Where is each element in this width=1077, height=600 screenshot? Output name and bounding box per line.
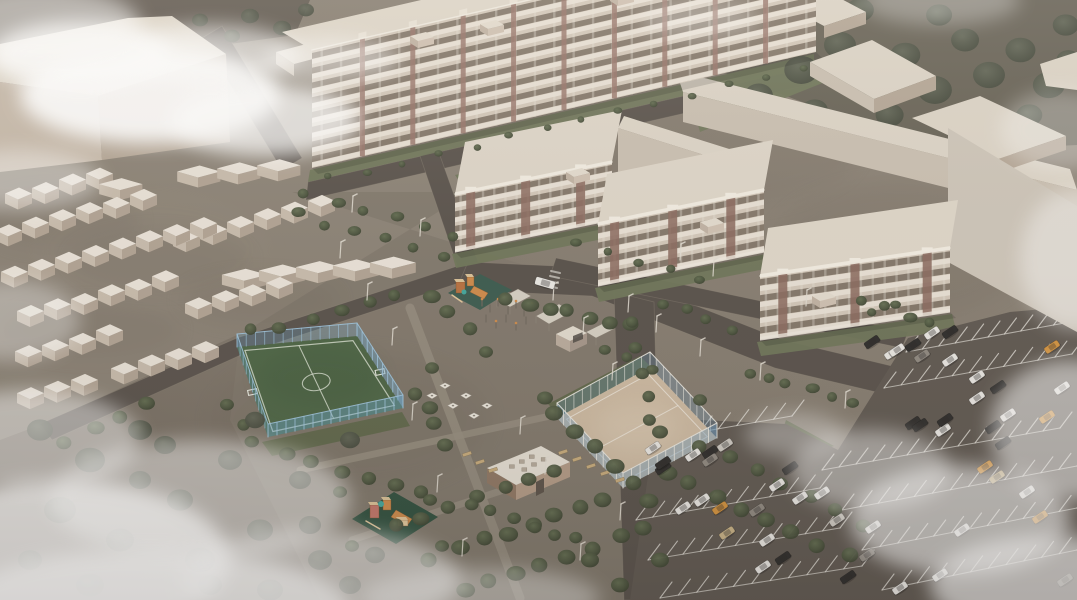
aerial-render-image bbox=[0, 0, 1077, 600]
scene-canvas bbox=[0, 0, 1077, 600]
tone-overlay bbox=[0, 0, 1077, 600]
